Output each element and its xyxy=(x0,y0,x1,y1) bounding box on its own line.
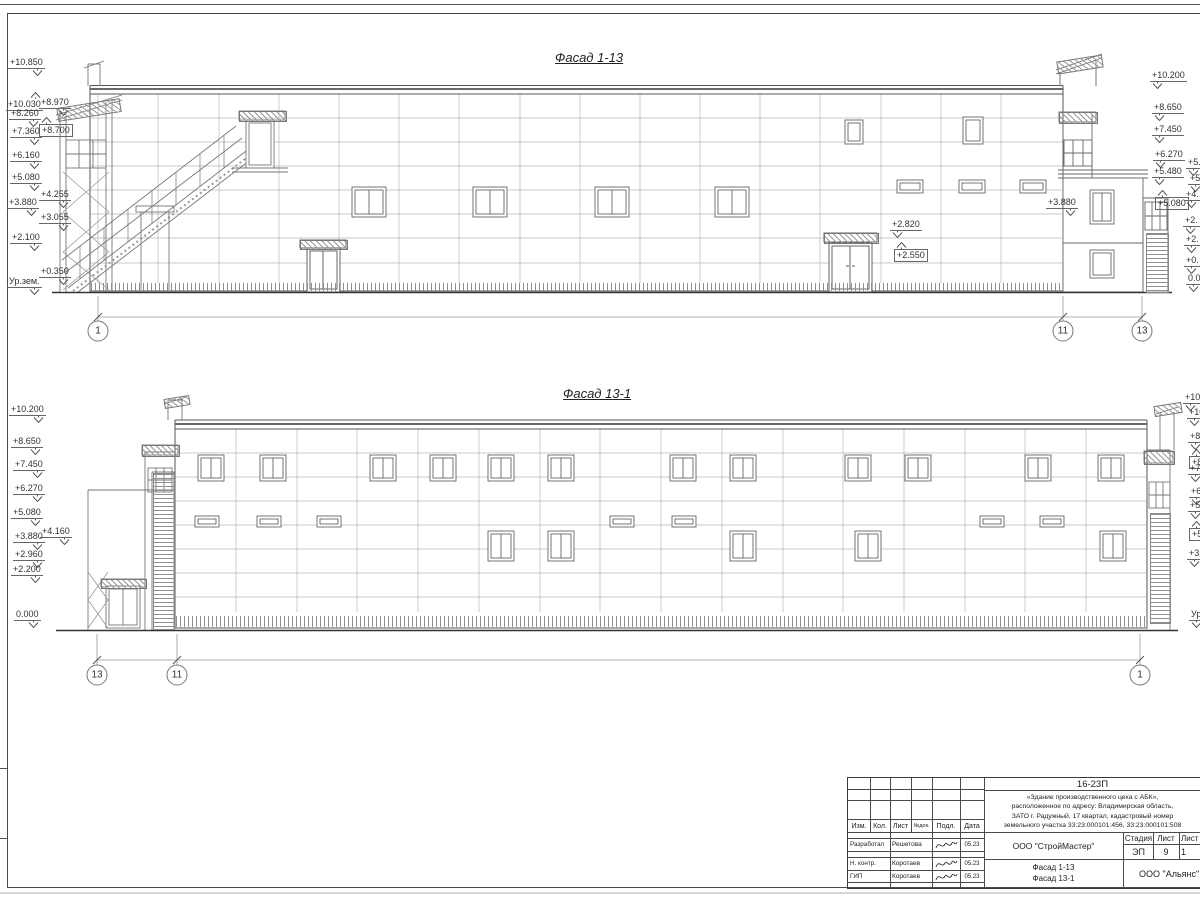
elevation-value: +5. xyxy=(1188,173,1200,185)
elevation-value: +2.960 xyxy=(13,549,45,561)
elevation-mark: +2.200 xyxy=(11,564,43,583)
level-flag-icon xyxy=(1157,190,1168,197)
f1-door1-canopy-hatch xyxy=(300,240,348,250)
elevation-mark: +3.880 xyxy=(1046,197,1078,216)
elevation-value: +6.270 xyxy=(13,483,45,495)
level-flag-icon xyxy=(26,209,37,216)
signature-row: ГИП Коротаев 05.23 xyxy=(848,870,984,883)
elevation-mark: +3.055 xyxy=(39,212,71,231)
tb-line xyxy=(848,800,984,801)
tb-sheet-value: 9 xyxy=(1153,844,1179,859)
axis-bubble: 11 xyxy=(167,665,188,686)
facade1-title: Фасад 1-13 xyxy=(555,50,623,65)
elevation-mark: +8.970 xyxy=(39,97,71,116)
elevation-mark: +10. xyxy=(1187,407,1200,426)
f1-windows xyxy=(352,117,1046,217)
elevation-value: +10. xyxy=(1187,407,1200,419)
elevation-value: Ур. xyxy=(1189,609,1200,621)
elevation-value: +6. xyxy=(1189,486,1200,498)
elevation-value: +5. xyxy=(1189,528,1200,541)
signature-date: 05.23 xyxy=(960,874,984,880)
elevation-value: +7.450 xyxy=(1152,124,1184,136)
level-flag-icon xyxy=(30,576,41,583)
drawing-sheet: { "facade1": { "title": "Фасад 1-13", "m… xyxy=(0,0,1200,900)
tb-col-ndok: №док. xyxy=(911,820,932,832)
elevation-mark: Ур.зем. xyxy=(7,276,42,295)
elevation-mark: +2.550 xyxy=(894,242,928,262)
tb-col-list: Лист xyxy=(890,820,911,832)
elevation-value: +6.160 xyxy=(10,150,42,162)
elevation-mark: +3. xyxy=(1187,548,1200,567)
f1-right-tower-canopy-hatch xyxy=(1059,112,1098,124)
elevation-mark: +8.650 xyxy=(11,436,43,455)
elevation-mark: +8.260 xyxy=(9,108,41,127)
elevation-value: +3.055 xyxy=(39,212,71,224)
tb-col-data: Дата xyxy=(960,820,984,832)
signature-name: Коротаев xyxy=(890,873,932,880)
level-flag-icon xyxy=(896,242,907,249)
axis-label: 13 xyxy=(91,670,102,681)
f1-exterior-stair xyxy=(62,111,288,292)
elevation-value: +2.200 xyxy=(11,564,43,576)
elevation-value: +6.270 xyxy=(1153,149,1185,161)
level-flag-icon xyxy=(892,231,903,238)
elevation-mark: +5. xyxy=(1188,500,1200,519)
facade2-group xyxy=(56,397,1178,668)
level-flag-icon xyxy=(58,201,69,208)
elevation-value: +4.255 xyxy=(39,189,71,201)
level-flag-icon xyxy=(1189,419,1200,426)
f2-right-canopy-hatch xyxy=(1144,451,1175,465)
facade2-title: Фасад 13-1 xyxy=(563,386,631,401)
axis-bubble: 11 xyxy=(1053,321,1074,342)
elevation-mark: +2.820 xyxy=(890,219,922,238)
elevation-mark: +8.650 xyxy=(1152,102,1184,121)
f1-parapet xyxy=(90,86,1063,95)
axis-label: 1 xyxy=(95,326,101,337)
elevation-mark: +0.350 xyxy=(39,266,71,285)
elevation-value: +2. xyxy=(1183,215,1200,227)
signature-row: Разработал Решетова 05.23 xyxy=(848,838,984,851)
level-flag-icon xyxy=(1190,475,1200,482)
elevation-value: +3.880 xyxy=(13,531,45,543)
elevation-value: +8. xyxy=(1188,431,1200,443)
elevation-value: +7. xyxy=(1188,463,1200,475)
level-flag-icon xyxy=(30,448,41,455)
level-flag-icon xyxy=(1186,246,1197,253)
elevation-value: +2.820 xyxy=(890,219,922,231)
level-flag-icon xyxy=(1154,178,1165,185)
elevation-value: +5.080 xyxy=(11,507,43,519)
elevation-value: +8.650 xyxy=(11,436,43,448)
level-flag-icon xyxy=(29,244,40,251)
level-flag-icon xyxy=(1186,201,1197,208)
elevation-mark: +6.270 xyxy=(13,483,45,502)
elevation-value: +5.080 xyxy=(10,172,42,184)
level-flag-icon xyxy=(58,224,69,231)
elevation-value: +10.200 xyxy=(9,404,46,416)
level-flag-icon xyxy=(59,538,70,545)
elevation-mark: +10.200 xyxy=(1150,70,1187,89)
title-block: Изм. Кол. Лист №док. Подл. Дата 16-23П «… xyxy=(847,777,1200,889)
level-flag-icon xyxy=(58,278,69,285)
level-flag-icon xyxy=(58,109,69,116)
elevation-value: +0. xyxy=(1184,255,1200,267)
tb-line xyxy=(1179,832,1180,859)
elevation-value: +2. xyxy=(1184,234,1200,246)
signature-name: Коротаев xyxy=(890,860,932,867)
level-flag-icon xyxy=(33,416,44,423)
elevation-mark: +7.450 xyxy=(1152,124,1184,143)
elevation-value: +8.650 xyxy=(1152,102,1184,114)
elevation-mark: +10.850 xyxy=(8,57,45,76)
f1-right-ladder-hatch xyxy=(1146,233,1169,293)
elevation-value: +10.200 xyxy=(1150,70,1187,82)
elevation-value: +10.850 xyxy=(8,57,45,69)
level-flag-icon xyxy=(32,471,43,478)
level-flag-icon xyxy=(1191,621,1200,628)
elevation-value: 0.0 xyxy=(1186,273,1200,285)
elevation-mark: +7.450 xyxy=(13,459,45,478)
tb-project-code: 16-23П xyxy=(984,778,1200,790)
signature-icon xyxy=(932,871,960,883)
tb-sheets-label: Лист xyxy=(1181,833,1200,844)
tb-col-izm: Изм. xyxy=(848,820,870,832)
signature-icon xyxy=(932,839,960,851)
elevation-mark: +6.160 xyxy=(10,150,42,169)
signature-row: Н. контр. Коротаев 05.23 xyxy=(848,857,984,870)
level-flag-icon xyxy=(1185,227,1196,234)
elevation-value: +8.970 xyxy=(39,97,71,109)
tb-sheet-subject: Фасад 1-13 Фасад 13-1 xyxy=(984,860,1123,886)
elevation-mark: +5.080 xyxy=(11,507,43,526)
signature-date: 05.23 xyxy=(960,861,984,867)
elevation-mark: +3.880 xyxy=(7,197,39,216)
elevation-mark: +5. xyxy=(1189,521,1200,541)
elevation-value: +0.350 xyxy=(39,266,71,278)
axis-label: 1 xyxy=(1137,670,1143,681)
elevation-mark: +4. xyxy=(1184,189,1200,208)
tb-sheet-label: Лист xyxy=(1153,833,1179,844)
level-flag-icon xyxy=(29,138,40,145)
elevation-mark: +0. xyxy=(1184,255,1200,274)
level-flag-icon xyxy=(1154,114,1165,121)
signature-role: Разработал xyxy=(848,841,890,848)
elevation-value: +7.360 xyxy=(10,126,42,138)
tb-contractor-org: ООО "Альянс" xyxy=(1139,859,1200,888)
signature-name: Решетова xyxy=(890,841,932,848)
elevation-mark: +2.100 xyxy=(10,232,42,251)
tb-col-podl: Подл. xyxy=(932,820,960,832)
f1-door2-canopy-hatch xyxy=(824,233,879,244)
tb-project-description: «Здание производственного цеха с АБК», р… xyxy=(986,791,1199,832)
level-flag-icon xyxy=(28,621,39,628)
elevation-mark: +8.700 xyxy=(39,117,73,137)
elevation-mark: +10.200 xyxy=(9,404,46,423)
level-flag-icon xyxy=(1191,521,1200,528)
signature-role: ГИП xyxy=(848,873,890,880)
elevation-mark: 0.000 xyxy=(14,609,41,628)
f2-plinth-hatch xyxy=(176,616,1146,627)
elevation-value: +3. xyxy=(1187,548,1200,560)
axis-bubble: 1 xyxy=(88,321,109,342)
f2-left-tower-canopy-hatch xyxy=(142,445,180,457)
level-flag-icon xyxy=(1188,285,1199,292)
level-flag-icon xyxy=(29,288,40,295)
elevation-mark: +5.080 xyxy=(10,172,42,191)
elevation-value: +8.700 xyxy=(39,124,73,137)
level-flag-icon xyxy=(32,495,43,502)
elevation-mark: Ур. xyxy=(1189,609,1200,628)
f1-dimensions xyxy=(94,296,1146,326)
signature-date: 05.23 xyxy=(960,842,984,848)
level-flag-icon xyxy=(30,519,41,526)
elevation-mark: +7. xyxy=(1188,463,1200,482)
f1-plinth-hatch xyxy=(91,283,1062,291)
axis-bubble: 13 xyxy=(1132,321,1153,342)
signature-icon xyxy=(932,858,960,870)
level-flag-icon xyxy=(32,69,43,76)
level-flag-icon xyxy=(1154,136,1165,143)
f2-windows-lower xyxy=(488,531,1126,561)
elevation-value: 0.000 xyxy=(14,609,41,621)
f2-left-ladder-hatch xyxy=(153,473,175,630)
f2-door-canopy-hatch xyxy=(101,579,147,589)
tb-stage-value: ЭП xyxy=(1124,844,1153,859)
level-flag-icon xyxy=(29,162,40,169)
elevation-value: +8.260 xyxy=(9,108,41,120)
axis-label: 13 xyxy=(1136,326,1147,337)
tb-stage-label: Стадия xyxy=(1124,833,1153,844)
elevation-value: +10. xyxy=(1183,392,1200,404)
f1-stairdoor-canopy-hatch xyxy=(239,111,287,122)
tb-sheets-value: 1 xyxy=(1181,844,1200,859)
elevation-mark: +4.255 xyxy=(39,189,71,208)
elevation-value: +7.450 xyxy=(13,459,45,471)
elevation-value: +4. xyxy=(1184,189,1200,201)
axis-bubble: 13 xyxy=(87,665,108,686)
elevation-mark: +3.880 xyxy=(13,531,45,550)
f2-parapet xyxy=(175,420,1147,429)
elevation-mark: +5.480 xyxy=(1152,166,1184,185)
level-flag-icon xyxy=(41,117,52,124)
signature-role: Н. контр. xyxy=(848,860,890,867)
elevation-value: +3.880 xyxy=(1046,197,1078,209)
elevation-value: +5.480 xyxy=(1152,166,1184,178)
elevation-mark: +8. xyxy=(1188,431,1200,450)
elevation-value: +2.100 xyxy=(10,232,42,244)
elevation-value: Ур.зем. xyxy=(7,276,42,288)
level-flag-icon xyxy=(1190,512,1200,519)
elevation-mark: 0.0 xyxy=(1186,273,1200,292)
f2-dimensions xyxy=(93,634,1144,668)
f2-right-ladder-hatch xyxy=(1150,513,1171,624)
tb-line xyxy=(848,789,984,790)
tb-col-kol: Кол. xyxy=(870,820,890,832)
tb-designer-org: ООО "СтройМастер" xyxy=(984,835,1123,857)
elevation-mark: +2. xyxy=(1183,215,1200,234)
elevation-value: +5. xyxy=(1186,157,1200,169)
elevation-mark: +2. xyxy=(1184,234,1200,253)
elevation-value: +3.880 xyxy=(7,197,39,209)
elevation-mark: +7.360 xyxy=(10,126,42,145)
elevation-value: +2.550 xyxy=(894,249,928,262)
axis-label: 11 xyxy=(172,670,182,681)
level-flag-icon xyxy=(1189,560,1200,567)
facades-linework xyxy=(0,0,1200,900)
axis-label: 11 xyxy=(1058,326,1068,337)
level-flag-icon xyxy=(1152,82,1163,89)
level-flag-icon xyxy=(1191,449,1200,456)
level-flag-icon xyxy=(1065,209,1076,216)
elevation-value: +5. xyxy=(1188,500,1200,512)
axis-bubble: 1 xyxy=(1130,665,1151,686)
tb-line xyxy=(848,851,984,852)
